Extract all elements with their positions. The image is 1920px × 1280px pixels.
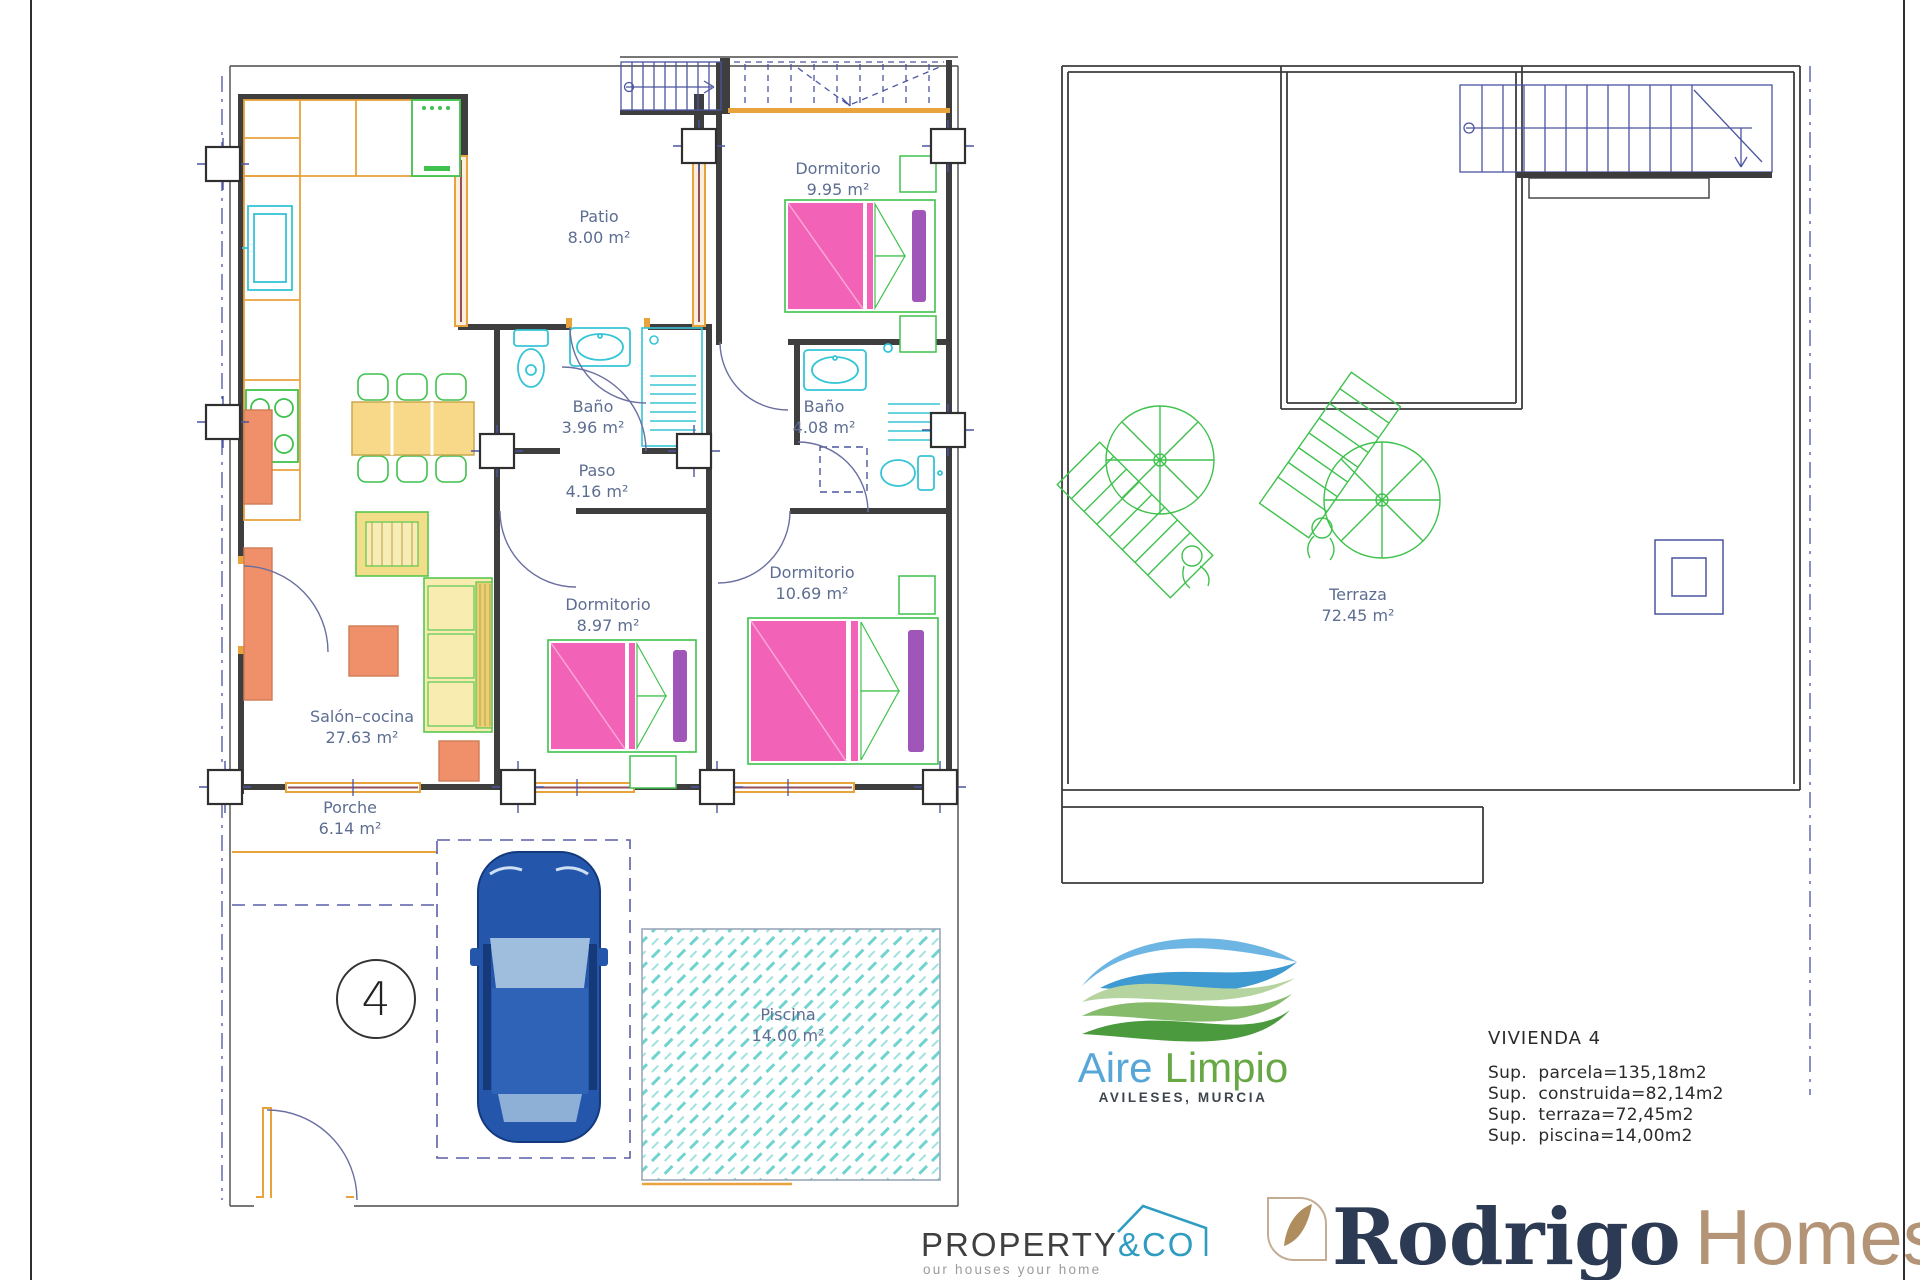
room-label-patio: Patio8.00 m²: [568, 206, 631, 248]
bed-icon: [548, 640, 696, 788]
skylight-icon: [1655, 540, 1723, 614]
toilet-icon: [514, 330, 548, 387]
armchair-icon: [356, 512, 428, 576]
sofa-icon: [424, 578, 492, 732]
info-line-parcela: Sup. parcela=135,18m2: [1488, 1063, 1724, 1084]
property-word: PROPERTY: [921, 1226, 1118, 1263]
shower-icon: [642, 328, 702, 446]
info-line-construida: Sup. construida=82,14m2: [1488, 1084, 1724, 1105]
aire-limpio-location: AVILESES, MURCIA: [1099, 1090, 1268, 1105]
aire-limpio-logo: AireLimpio: [1078, 1044, 1288, 1092]
umbrella-icon: [1106, 406, 1214, 514]
room-label-porche: Porche6.14 m²: [319, 797, 382, 839]
rodrigo-leaf-icon: [1268, 1198, 1326, 1260]
room-label-terraza: Terraza72.45 m²: [1322, 584, 1395, 626]
door-opening: [254, 1198, 354, 1210]
bed-icon: [748, 576, 938, 764]
room-label-dormitorio-1: Dormitorio9.95 m²: [795, 158, 880, 200]
plot-number-badge: 4: [336, 959, 416, 1039]
sink-icon: [804, 344, 892, 390]
property-co-logo: PROPERTY&CO: [921, 1226, 1195, 1264]
pool-area: [642, 929, 940, 1180]
aire-limpio-swoosh-icon: [1082, 938, 1297, 1041]
room-label-dormitorio-3: Dormitorio8.97 m²: [565, 594, 650, 636]
room-label-bano-1: Baño3.96 m²: [562, 396, 625, 438]
rodrigo-word: Rodrigo: [1332, 1192, 1681, 1280]
homes-word: Homes: [1695, 1193, 1920, 1280]
kitchen-sink-icon: [242, 206, 292, 290]
sun-lounger-icon: [1057, 442, 1213, 598]
fridge-icon: [412, 100, 460, 176]
dining-table-icon: [352, 374, 474, 482]
plot-number: 4: [361, 972, 390, 1026]
co-word: &CO: [1118, 1226, 1196, 1263]
stair-step: [1529, 178, 1709, 198]
floor-plan-sheet: Patio8.00 m² Dormitorio9.95 m² Baño3.96 …: [0, 0, 1920, 1280]
room-label-salon-cocina: Salón–cocina27.63 m²: [310, 706, 414, 748]
stairs-icon: [1460, 85, 1772, 172]
terrace-walls: [1062, 66, 1800, 883]
umbrella-icon: [1324, 442, 1440, 558]
toilet-icon: [881, 456, 942, 490]
rodrigo-homes-logo: RodrigoHomes: [1332, 1192, 1920, 1280]
room-label-piscina: Piscina14.00 m²: [752, 1004, 825, 1046]
property-co-tagline: our houses your home: [923, 1262, 1101, 1277]
car-icon: [470, 852, 608, 1142]
limpio-word: Limpio: [1164, 1044, 1288, 1091]
stairs-icon: [621, 62, 944, 110]
room-label-dormitorio-2: Dormitorio10.69 m²: [769, 562, 854, 604]
door-arc: [267, 1110, 357, 1200]
sideboard: [244, 410, 272, 700]
shower-tray-dashed: [820, 447, 867, 492]
info-line-piscina: Sup. piscina=14,00m2: [1488, 1126, 1724, 1147]
sink-icon: [570, 328, 630, 366]
aire-word: Aire: [1078, 1044, 1153, 1091]
surface-info-panel: VIVIENDA 4 Sup. parcela=135,18m2 Sup. co…: [1488, 1028, 1724, 1147]
info-title: VIVIENDA 4: [1488, 1028, 1724, 1049]
info-line-terraza: Sup. terraza=72,45m2: [1488, 1105, 1724, 1126]
stair-landing-wall: [1516, 172, 1772, 178]
room-label-bano-2: Baño4.08 m²: [793, 396, 856, 438]
room-label-paso: Paso4.16 m²: [566, 460, 629, 502]
